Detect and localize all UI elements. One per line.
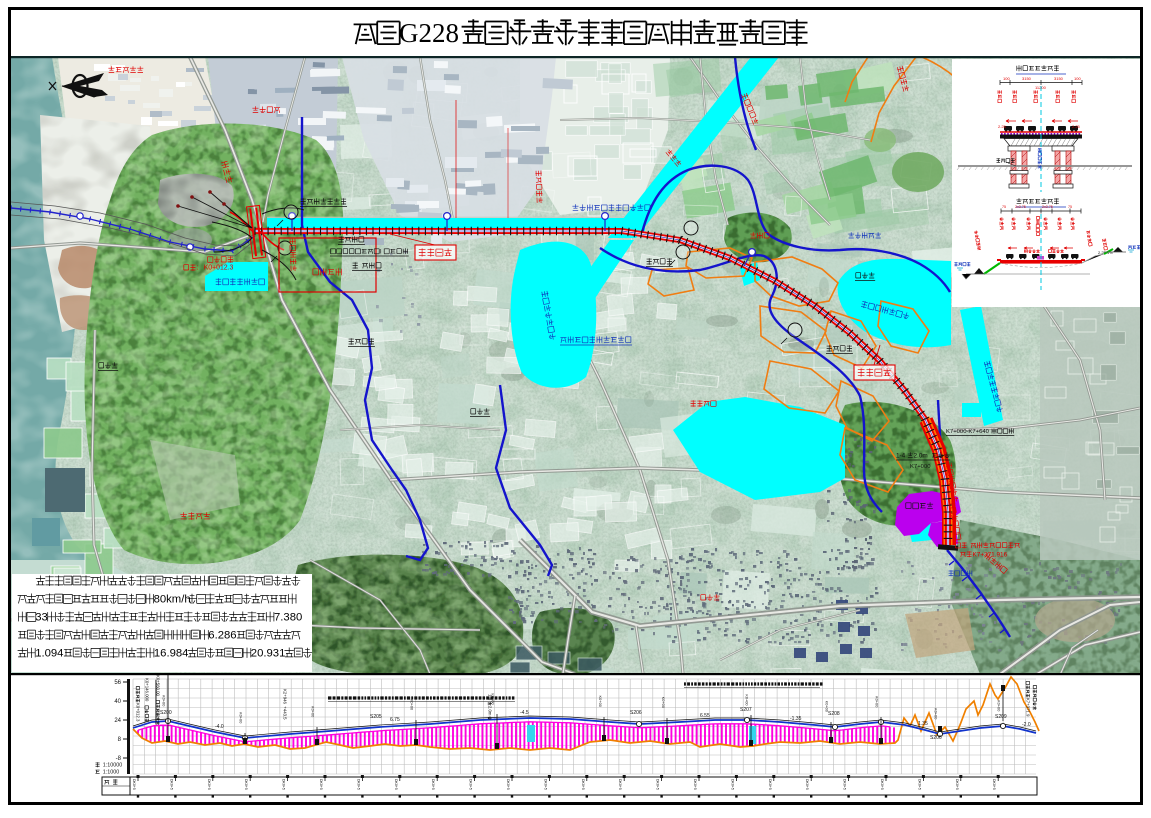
svg-text:1.094: 1.094 — [35, 647, 63, 659]
svg-text:DK0+5: DK0+5 — [169, 779, 173, 790]
svg-text:K0+00: K0+00 — [410, 699, 415, 711]
svg-text:G228: G228 — [399, 18, 459, 48]
svg-text:7.380: 7.380 — [274, 611, 302, 623]
svg-text:80km/h: 80km/h — [154, 593, 191, 605]
svg-text:DK0+5: DK0+5 — [207, 779, 211, 790]
svg-text:1-4: 1-4 — [896, 452, 906, 459]
svg-text:2.25: 2.25 — [998, 124, 1007, 129]
svg-text:S206: S206 — [930, 735, 942, 741]
svg-text:6.55: 6.55 — [700, 713, 710, 719]
svg-text:K7+000: K7+000 — [910, 464, 931, 470]
svg-text:24: 24 — [114, 718, 121, 724]
svg-text:1-4: 1-4 — [487, 694, 492, 701]
svg-text:DK0+5: DK0+5 — [843, 779, 847, 790]
svg-text:DK0+5: DK0+5 — [656, 779, 660, 790]
svg-text:S200: S200 — [160, 710, 172, 716]
svg-text:2x3.75: 2x3.75 — [1042, 205, 1053, 209]
svg-text:K0+00: K0+00 — [745, 694, 750, 706]
svg-text:DK0+5: DK0+5 — [730, 779, 734, 790]
svg-text:56: 56 — [114, 680, 121, 686]
svg-text:DK0+5: DK0+5 — [394, 779, 398, 790]
svg-text:DK0+5: DK0+5 — [581, 779, 585, 790]
svg-text:-4.5: -4.5 — [520, 710, 529, 716]
svg-text:20.931: 20.931 — [251, 647, 286, 659]
svg-text:DK0+5: DK0+5 — [768, 779, 772, 790]
svg-text:K0+00: K0+00 — [598, 696, 603, 708]
svg-text:2x3.75: 2x3.75 — [1015, 205, 1026, 209]
svg-text:K0+146.000: K0+146.000 — [144, 678, 149, 702]
svg-text:DK0+5: DK0+5 — [880, 779, 884, 790]
svg-text:1.35: 1.35 — [918, 721, 928, 727]
svg-text:K0+00: K0+00 — [661, 697, 666, 709]
svg-text:S208: S208 — [828, 711, 840, 717]
svg-text:K0+00: K0+00 — [997, 700, 1002, 712]
svg-text:-2.0: -2.0 — [1022, 722, 1031, 728]
svg-text:K0+012.3: K0+012.3 — [135, 703, 140, 722]
svg-text:S206: S206 — [630, 710, 642, 716]
svg-text:2.0m: 2.0m — [487, 706, 492, 716]
svg-text:-4.0: -4.0 — [215, 724, 224, 730]
svg-text:3150: 3150 — [1022, 76, 1032, 81]
svg-text:K7+371.916: K7+371.916 — [973, 551, 1008, 558]
svg-text:6.75: 6.75 — [390, 717, 400, 723]
svg-text:DK0+5: DK0+5 — [132, 779, 136, 790]
svg-text:75: 75 — [1068, 205, 1072, 209]
svg-text:DK0+5: DK0+5 — [618, 779, 622, 790]
svg-text:S207: S207 — [740, 707, 752, 713]
svg-text:K0+00: K0+00 — [239, 712, 244, 724]
svg-text:DK0+5: DK0+5 — [356, 779, 360, 790]
svg-text:75: 75 — [1002, 205, 1006, 209]
svg-text:DK0+5: DK0+5 — [319, 779, 323, 790]
svg-text:100: 100 — [1003, 76, 1010, 81]
svg-text:K7+000-K7+640: K7+000-K7+640 — [946, 429, 990, 435]
svg-text:K0+00: K0+00 — [934, 708, 939, 720]
svg-text:DK0+5: DK0+5 — [431, 779, 435, 790]
svg-text:K2+946: K2+946 — [282, 689, 287, 705]
svg-text:3150: 3150 — [1054, 76, 1064, 81]
svg-text:DK0+5: DK0+5 — [992, 779, 996, 790]
svg-text:2.25: 2.25 — [1072, 124, 1081, 129]
svg-text::: : — [196, 265, 198, 272]
svg-text:S205: S205 — [370, 714, 382, 720]
svg-text:DK0+5: DK0+5 — [543, 779, 547, 790]
svg-text:DK0+5: DK0+5 — [282, 779, 286, 790]
svg-text:DK0+5: DK0+5 — [469, 779, 473, 790]
svg-text:1:1000: 1:1000 — [103, 770, 120, 776]
svg-text:-1.35: -1.35 — [790, 716, 802, 722]
svg-text:DK0+5: DK0+5 — [506, 779, 510, 790]
svg-text:DK0+5: DK0+5 — [955, 779, 959, 790]
svg-text:S209: S209 — [995, 714, 1007, 720]
svg-text:K0+00: K0+00 — [875, 696, 880, 708]
svg-text:8: 8 — [118, 737, 122, 743]
svg-text:40: 40 — [114, 699, 121, 705]
svg-text:1:10000: 1:10000 — [103, 763, 123, 769]
svg-text:K0+012.3: K0+012.3 — [204, 265, 234, 272]
svg-text:K7+371.9: K7+371.9 — [1025, 698, 1030, 717]
svg-text:DK0+5: DK0+5 — [805, 779, 809, 790]
svg-text:33: 33 — [35, 611, 48, 623]
svg-text:K0+00: K0+00 — [311, 706, 316, 718]
svg-text:DK0+5: DK0+5 — [244, 779, 248, 790]
svg-text:16.984: 16.984 — [154, 647, 189, 659]
svg-text:100: 100 — [1074, 76, 1081, 81]
svg-text:2.0m: 2.0m — [914, 452, 928, 459]
svg-text:-8: -8 — [116, 756, 122, 762]
svg-text:K0+00: K0+00 — [162, 695, 167, 707]
svg-text:+443.5: +443.5 — [282, 706, 287, 720]
svg-text:DK0+5: DK0+5 — [693, 779, 697, 790]
svg-text:6.286: 6.286 — [208, 629, 236, 641]
svg-text:K0+560.00: K0+560.00 — [155, 675, 160, 697]
svg-text:DK0+5: DK0+5 — [917, 779, 921, 790]
svg-text:I: I — [380, 248, 382, 255]
